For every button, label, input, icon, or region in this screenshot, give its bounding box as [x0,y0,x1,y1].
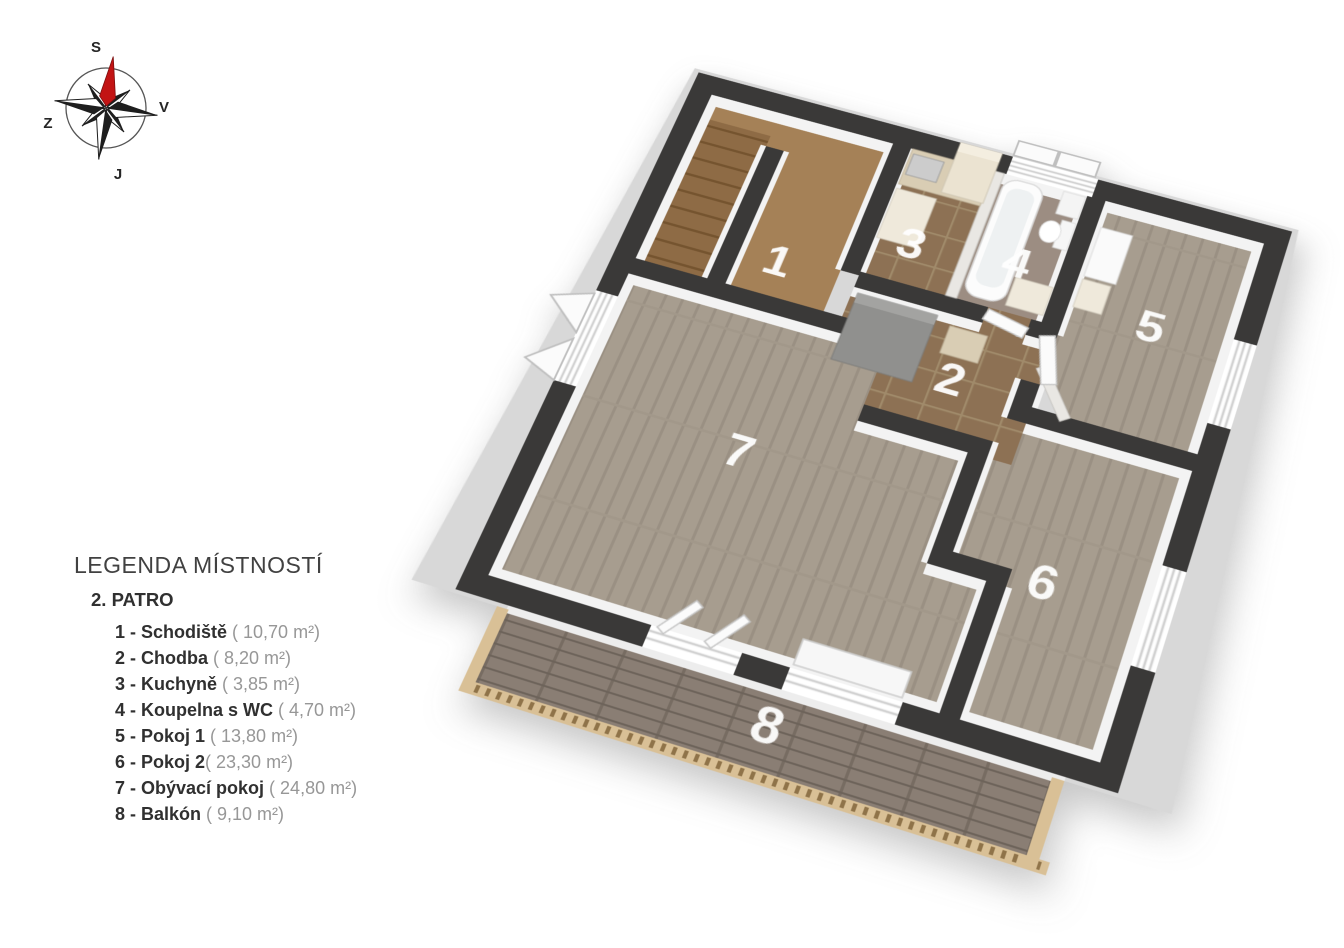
legend-item-name: 8 - Balkón [115,804,201,824]
legend-item: 6 - Pokoj 2( 23,30 m²) [115,749,357,775]
legend-item-area: ( 24,80 m²) [264,778,357,798]
legend-item-area: ( 3,85 m²) [217,674,300,694]
legend-item: 4 - Koupelna s WC ( 4,70 m²) [115,697,357,723]
legend-floor: 2. PATRO [91,589,357,611]
compass-cardinal-points [47,49,164,166]
legend-item: 7 - Obývací pokoj ( 24,80 m²) [115,775,357,801]
compass-east-label: V [159,99,169,116]
legend-item-name: 1 - Schodiště [115,622,227,642]
legend-item-area: ( 23,30 m²) [205,752,293,772]
legend-item: 5 - Pokoj 1 ( 13,80 m²) [115,723,357,749]
floor-plan-3d: 1 2 3 4 5 6 7 8 [336,29,1344,943]
legend-item-name: 6 - Pokoj 2 [115,752,205,772]
compass-south-label: J [114,166,122,183]
legend-item: 1 - Schodiště ( 10,70 m²) [115,619,357,645]
legend-item-area: ( 8,20 m²) [208,648,291,668]
legend-item-name: 5 - Pokoj 1 [115,726,205,746]
legend-items: 1 - Schodiště ( 10,70 m²) 2 - Chodba ( 8… [115,619,357,827]
room-legend: LEGENDA MÍSTNOSTÍ 2. PATRO 1 - Schodiště… [74,552,357,827]
floor-plan-svg: 1 2 3 4 5 6 7 8 [336,29,1344,943]
legend-item-area: ( 10,70 m²) [227,622,320,642]
legend-item: 3 - Kuchyně ( 3,85 m²) [115,671,357,697]
legend-item: 8 - Balkón ( 9,10 m²) [115,801,357,827]
legend-item-area: ( 4,70 m²) [273,700,356,720]
compass-rose: S V Z J [34,26,184,188]
compass-west-label: Z [43,115,52,132]
room-5-door [1040,336,1057,385]
legend-item-name: 2 - Chodba [115,648,208,668]
compass-north-label: S [91,39,101,56]
legend-title: LEGENDA MÍSTNOSTÍ [74,552,357,579]
legend-item-name: 4 - Koupelna s WC [115,700,273,720]
compass-star [47,49,164,166]
legend-item-name: 7 - Obývací pokoj [115,778,264,798]
legend-item-area: ( 13,80 m²) [205,726,298,746]
legend-item-area: ( 9,10 m²) [201,804,284,824]
legend-item: 2 - Chodba ( 8,20 m²) [115,645,357,671]
legend-item-name: 3 - Kuchyně [115,674,217,694]
